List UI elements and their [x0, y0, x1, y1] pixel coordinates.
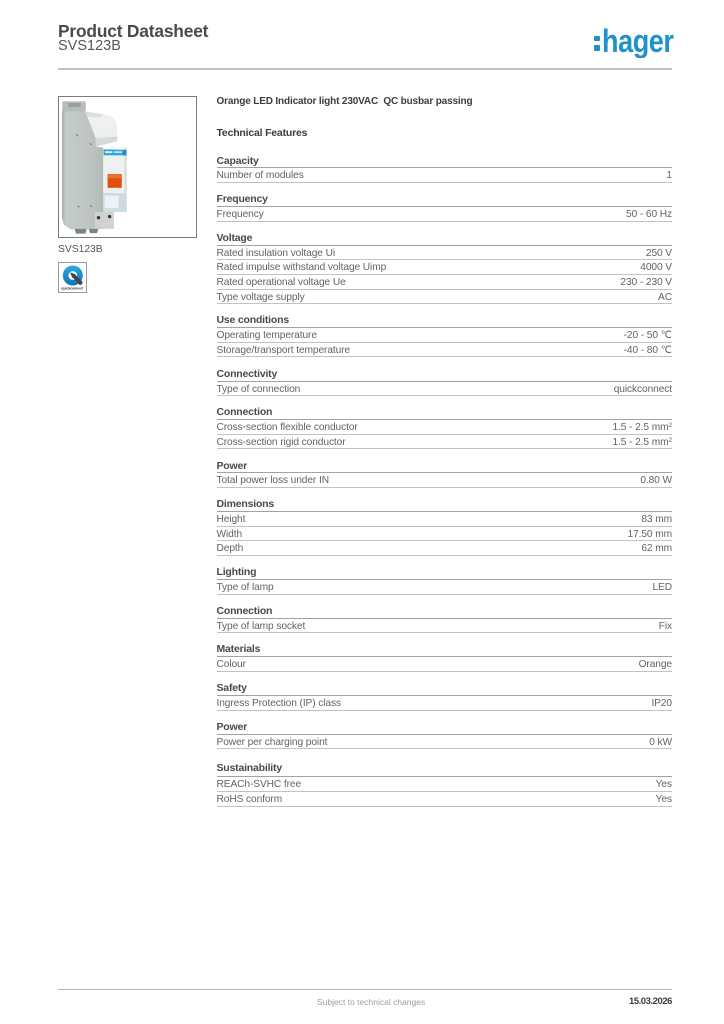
- svg-text:quickconnect: quickconnect: [62, 287, 85, 291]
